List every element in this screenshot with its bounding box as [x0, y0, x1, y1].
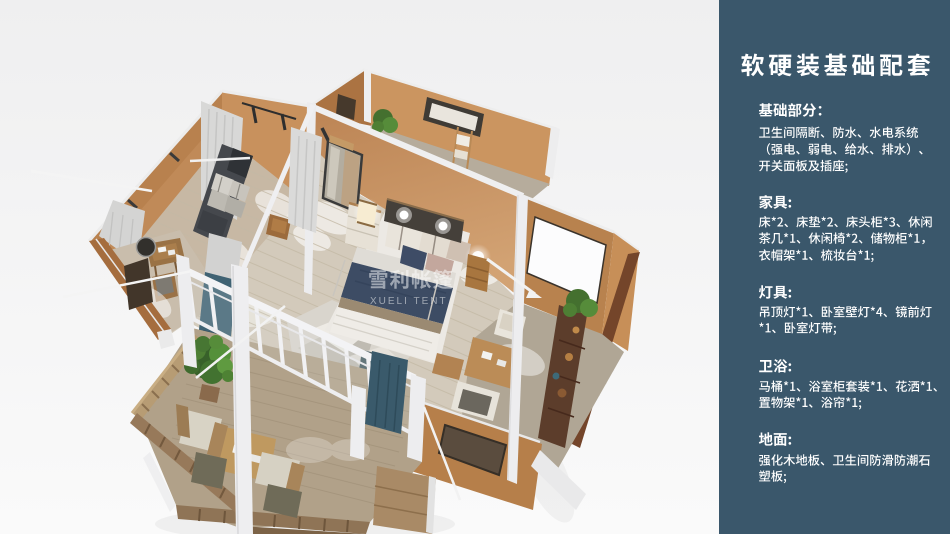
- svg-text:XUELI TENT: XUELI TENT: [370, 296, 448, 307]
